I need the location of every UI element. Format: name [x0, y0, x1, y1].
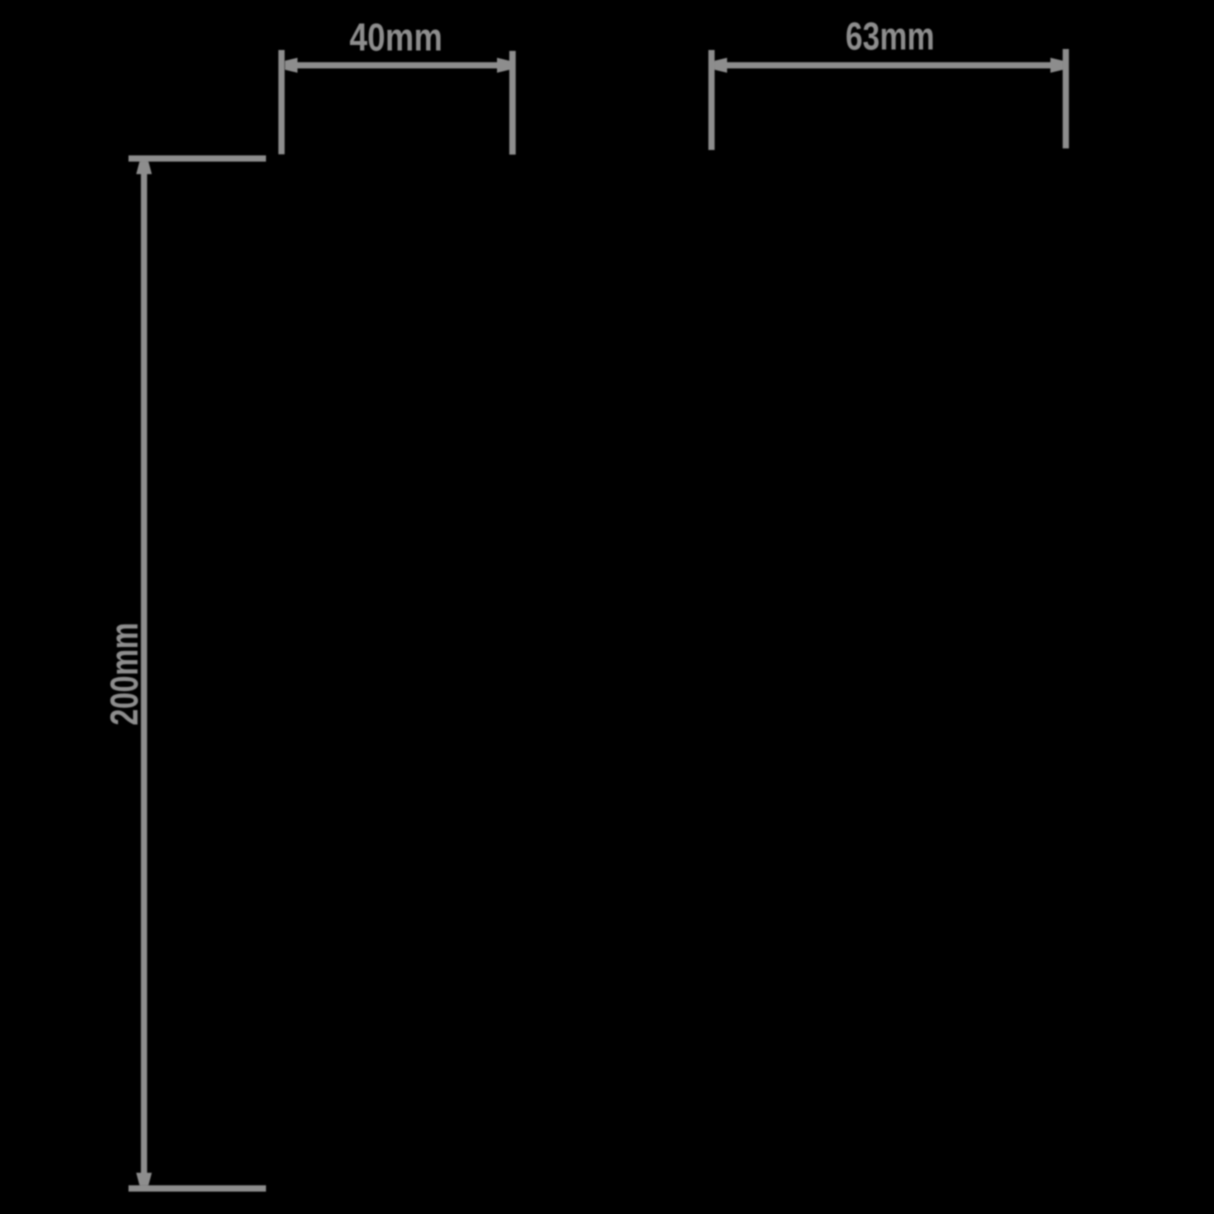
- svg-text:40mm: 40mm: [350, 17, 443, 60]
- svg-text:63mm: 63mm: [846, 16, 935, 59]
- svg-text:200mm: 200mm: [104, 623, 147, 726]
